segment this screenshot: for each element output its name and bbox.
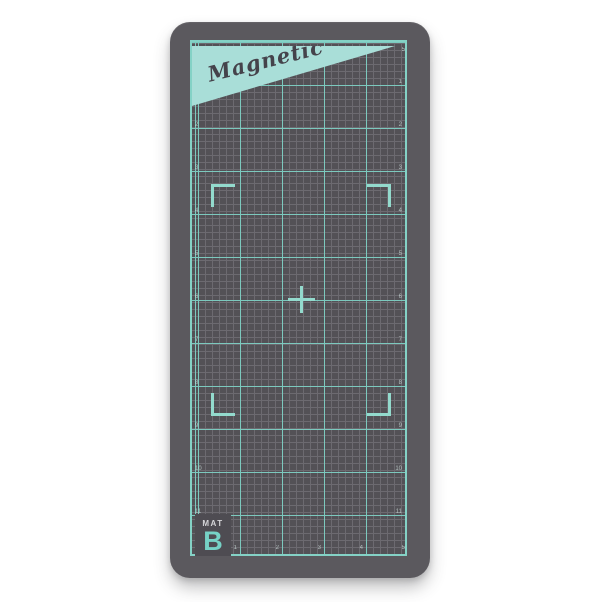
ruler-number: 11 [195, 472, 204, 515]
ruler-number: 3 [280, 542, 322, 551]
ruler-number: 7 [393, 300, 402, 343]
magnetic-banner: Magnetic [192, 46, 395, 106]
ruler-number: 6 [195, 257, 204, 300]
ruler-numbers-left: 1234567891011 [195, 42, 204, 515]
ruler-number: 11 [393, 472, 402, 515]
ruler-number: 2 [238, 542, 280, 551]
corner-mark-bottom-right-icon [367, 393, 391, 416]
center-cross-icon [288, 286, 315, 313]
mat-label-letter: B [203, 528, 223, 555]
ruler-number: 5 [195, 214, 204, 257]
corner-mark-top-left-icon [211, 184, 235, 207]
corner-mark-top-right-icon [367, 184, 391, 207]
product-photo: 12345 12345 1234567891011 1234567891011 … [0, 0, 600, 602]
ruler-number: 10 [195, 429, 204, 472]
ruler-number: 8 [195, 343, 204, 386]
ruler-number: 5 [393, 214, 402, 257]
corner-mark-bottom-left-icon [211, 393, 235, 416]
banner-label: Magnetic [205, 34, 326, 87]
ruler-numbers-right: 1234567891011 [393, 42, 402, 515]
center-cross-vertical-bar [300, 286, 303, 313]
ruler-number: 2 [393, 85, 402, 128]
ruler-number: 4 [393, 171, 402, 214]
ruler-number: 3 [393, 128, 402, 171]
ruler-number: 9 [393, 386, 402, 429]
ruler-number: 7 [195, 300, 204, 343]
ruler-number: 4 [195, 171, 204, 214]
cutting-grid: 12345 12345 1234567891011 1234567891011 … [190, 40, 407, 556]
ruler-number: 5 [364, 542, 406, 551]
ruler-number: 9 [195, 386, 204, 429]
ruler-number: 8 [393, 343, 402, 386]
ruler-number: 4 [322, 542, 364, 551]
ruler-number: 3 [195, 128, 204, 171]
magnetic-cutting-mat: 12345 12345 1234567891011 1234567891011 … [170, 22, 430, 578]
ruler-number: 6 [393, 257, 402, 300]
ruler-number: 1 [393, 42, 402, 85]
mat-label: MAT B [195, 514, 231, 556]
ruler-number: 10 [393, 429, 402, 472]
